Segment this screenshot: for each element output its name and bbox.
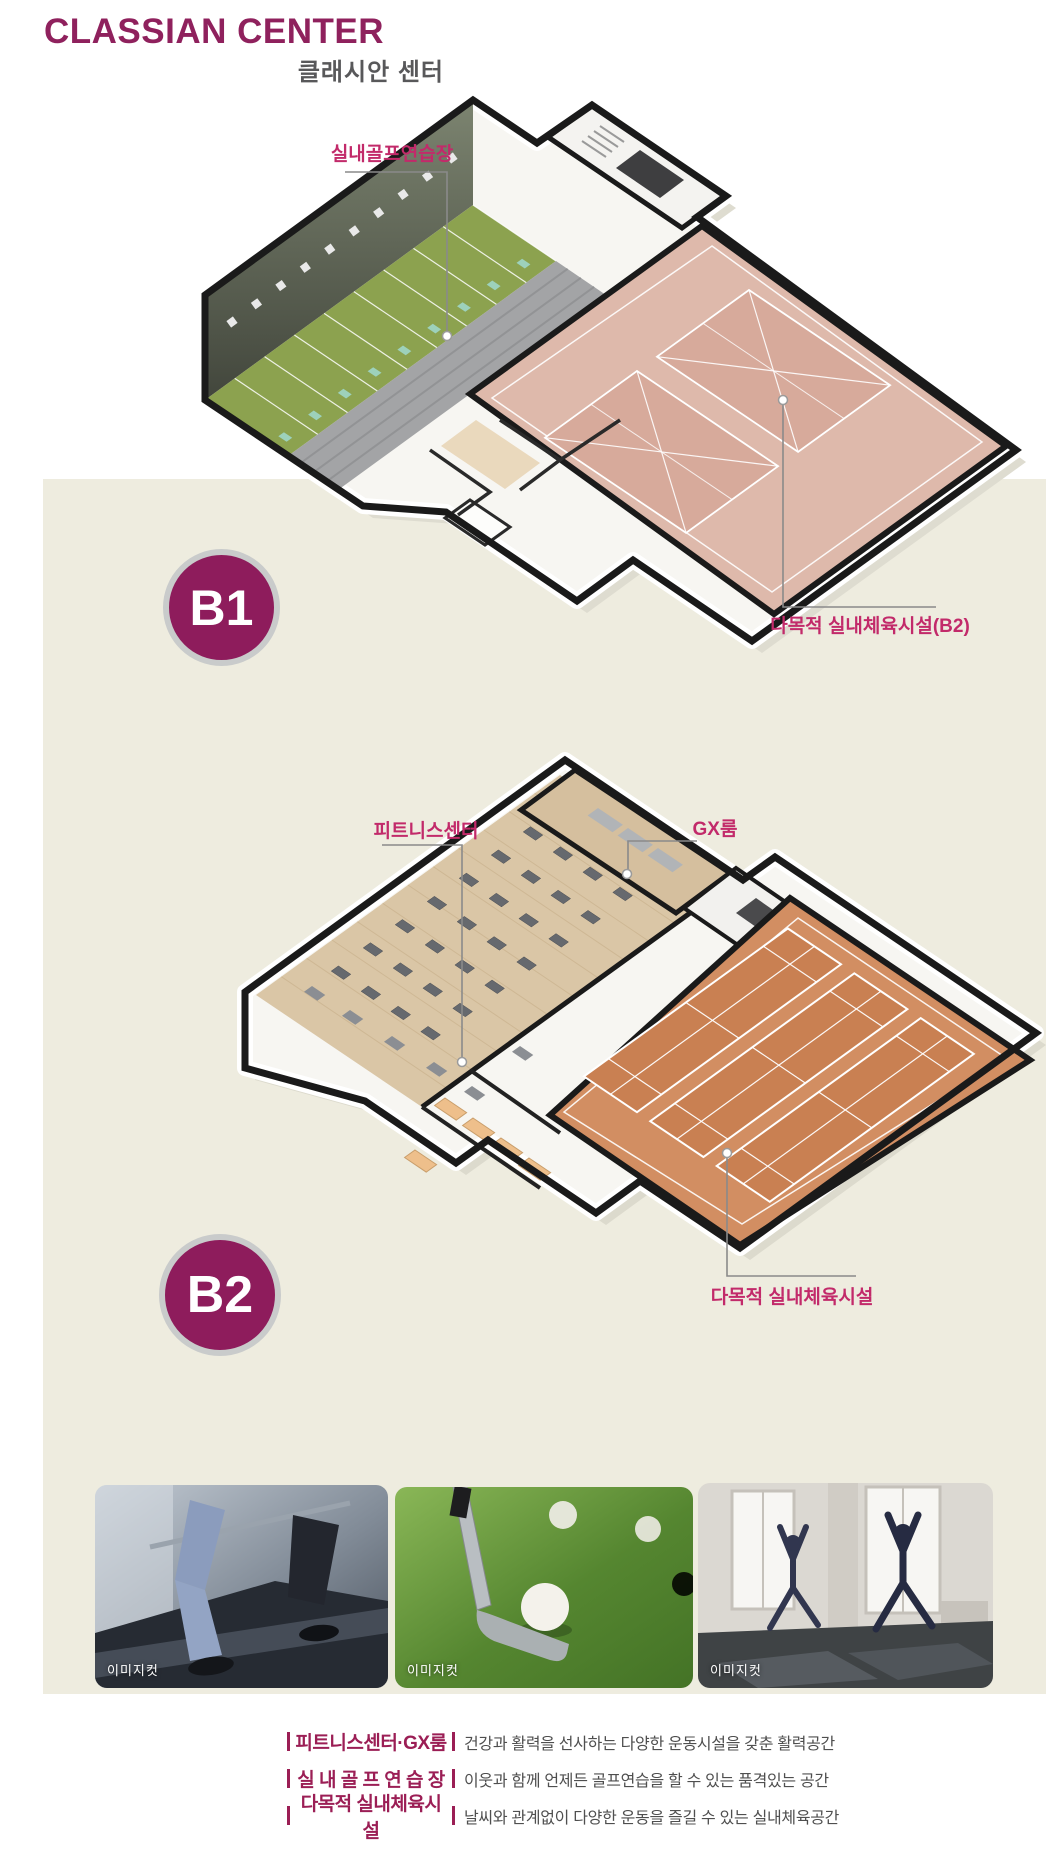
image-cut-caption: 이미지컷	[407, 1660, 459, 1679]
label-gx-room: GX룸	[693, 814, 738, 841]
label-multipurpose-gym-b1: 다목적 실내체육시설(B2)	[770, 611, 970, 638]
legend-row-gym: 다목적 실내체육시설 날씨와 관계없이 다양한 운동을 즐길 수 있는 실내체육…	[287, 1797, 839, 1834]
brochure-page: CLASSIAN CENTER 클래시안 센터	[0, 0, 1046, 1871]
legend-desc: 건강과 활력을 선사하는 다양한 운동시설을 갖춘 활력공간	[464, 1730, 835, 1754]
legend-bar	[287, 1769, 290, 1788]
legend-desc: 날씨와 관계없이 다양한 운동을 즐길 수 있는 실내체육공간	[464, 1804, 839, 1828]
label-fitness-center: 피트니스센터	[374, 816, 479, 843]
floor-badge-b1: B1	[163, 549, 280, 666]
legend-bar	[452, 1732, 455, 1751]
photo-treadmill-art	[95, 1485, 388, 1688]
legend-bar	[287, 1732, 290, 1751]
legend-term: 다목적 실내체육시설	[295, 1789, 447, 1843]
legend-bar	[287, 1806, 290, 1825]
photo-yoga: 이미지컷	[698, 1483, 993, 1688]
image-cut-caption: 이미지컷	[710, 1660, 762, 1679]
photo-treadmill: 이미지컷	[95, 1485, 388, 1688]
floor-badge-b2: B2	[159, 1234, 281, 1356]
legend-bar	[452, 1806, 455, 1825]
photo-yoga-art	[698, 1483, 993, 1688]
legend-desc: 이웃과 함께 언제든 골프연습을 할 수 있는 품격있는 공간	[464, 1767, 829, 1791]
legend-term: 피트니스센터·GX룸	[295, 1728, 447, 1755]
label-indoor-golf-range: 실내골프연습장	[331, 139, 453, 166]
image-cut-caption: 이미지컷	[107, 1660, 159, 1679]
legend-row-fitness: 피트니스센터·GX룸 건강과 활력을 선사하는 다양한 운동시설을 갖춘 활력공…	[287, 1723, 839, 1760]
legend-bar	[452, 1769, 455, 1788]
b2-floor-plan	[0, 700, 1046, 1300]
photo-golf: 이미지컷	[395, 1487, 693, 1688]
label-multipurpose-gym-b2: 다목적 실내체육시설	[711, 1282, 874, 1309]
legend: 피트니스센터·GX룸 건강과 활력을 선사하는 다양한 운동시설을 갖춘 활력공…	[287, 1723, 839, 1834]
b1-floor-plan	[0, 0, 1046, 700]
photo-golf-art	[395, 1487, 693, 1688]
